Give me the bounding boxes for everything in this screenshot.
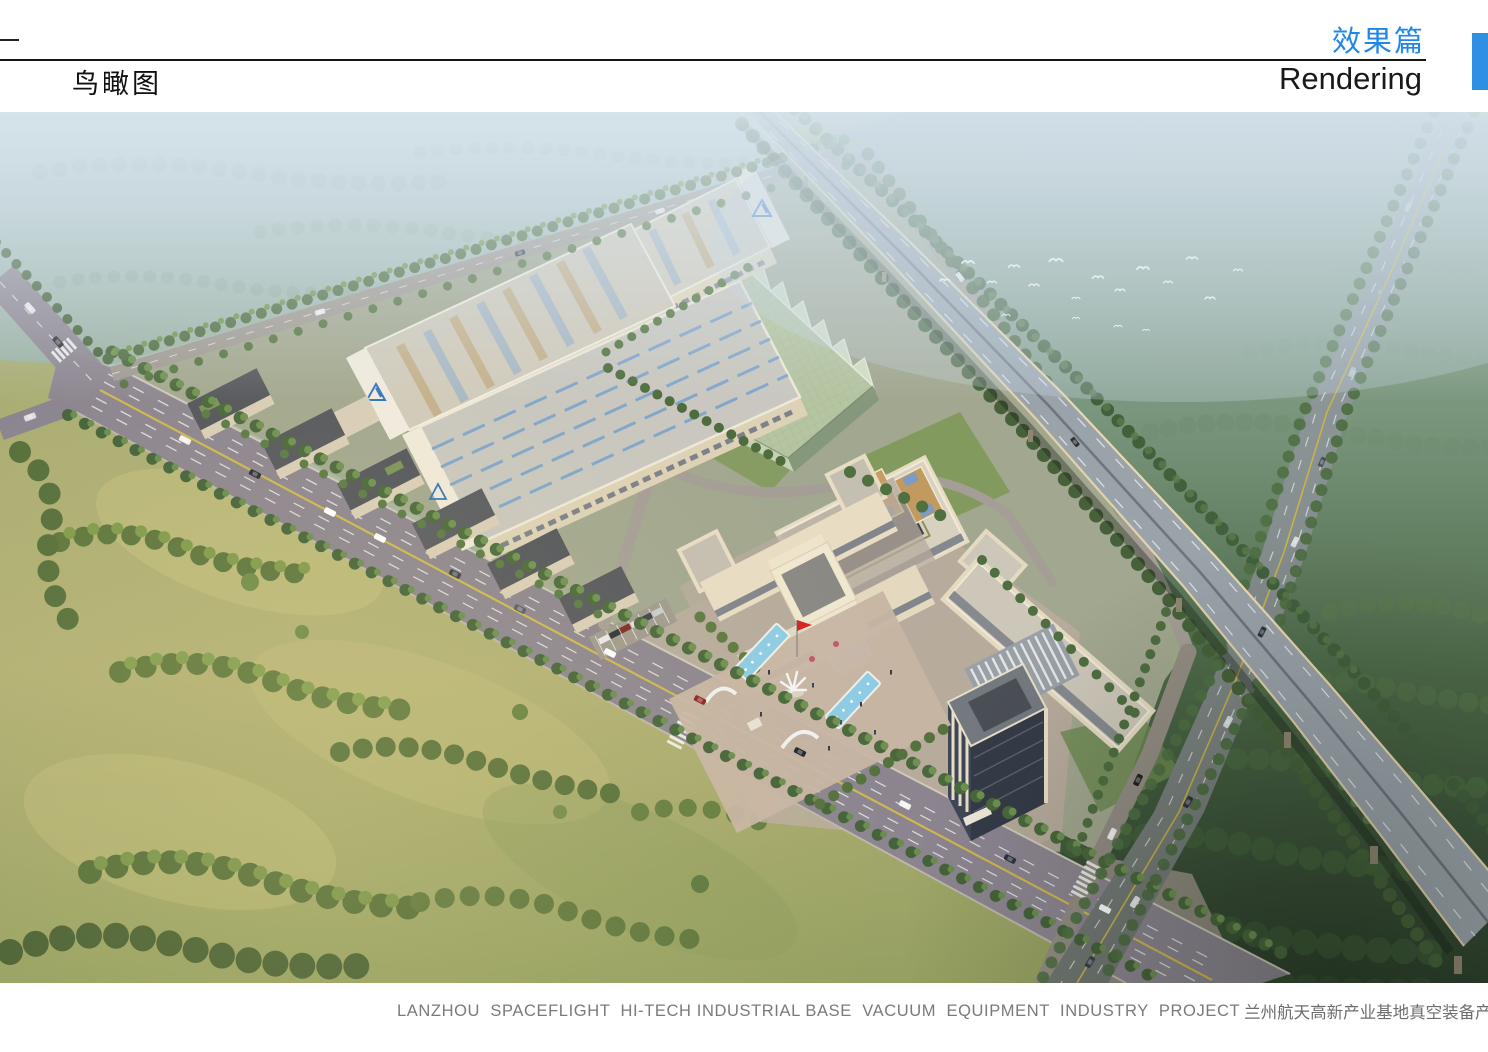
project-caption: LANZHOU SPACEFLIGHT HI-TECH INDUSTRIAL B… bbox=[397, 999, 1488, 1023]
presentation-page: 效果篇 Rendering 鸟瞰图 bbox=[0, 0, 1488, 1052]
project-name-en: LANZHOU SPACEFLIGHT HI-TECH INDUSTRIAL B… bbox=[397, 1002, 1240, 1021]
section-title-cn: 效果篇 bbox=[1332, 18, 1425, 60]
header-accent-square bbox=[1472, 33, 1488, 90]
atmosphere-overlays bbox=[0, 112, 1488, 983]
aerial-rendering-image bbox=[0, 112, 1488, 983]
page-title: 鸟瞰图 bbox=[72, 62, 162, 101]
header-rule bbox=[0, 59, 1426, 61]
section-title-en: Rendering bbox=[1279, 61, 1422, 97]
project-name-cn: 兰州航天高新产业基地真空装备产业园项目 bbox=[1244, 999, 1488, 1023]
corner-tick-rule bbox=[0, 39, 19, 41]
